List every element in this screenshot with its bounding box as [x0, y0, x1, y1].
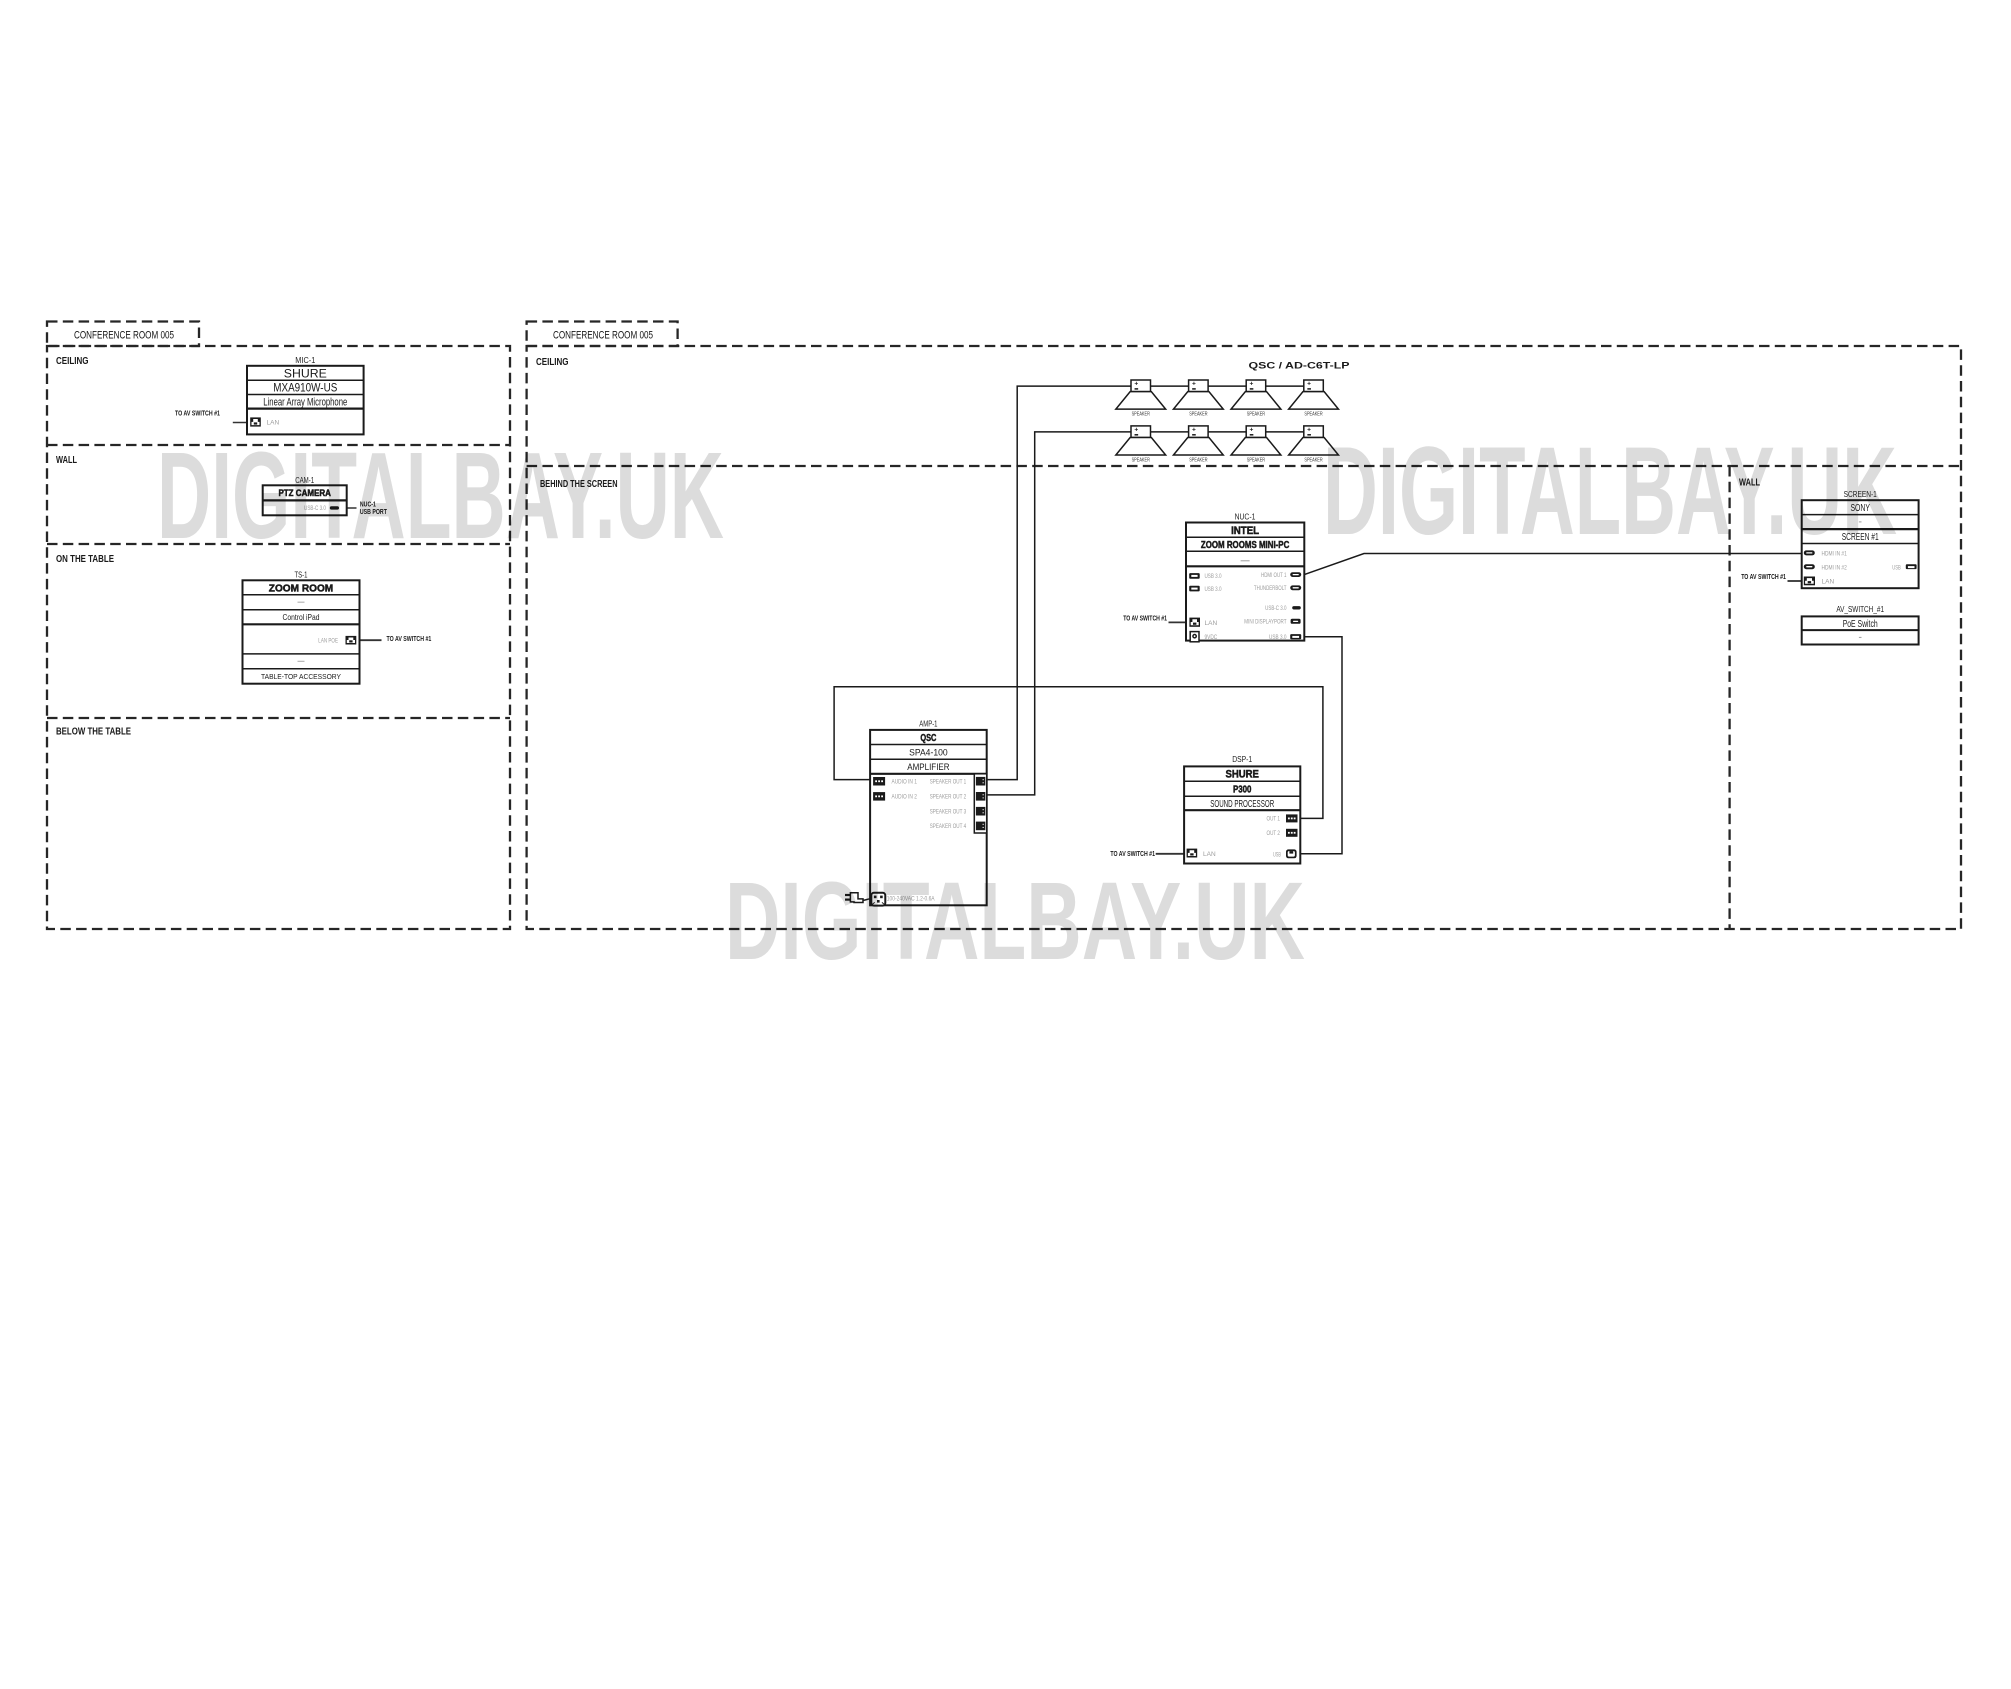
svg-text:CONFERENCE ROOM 005: CONFERENCE ROOM 005: [74, 330, 174, 342]
svg-text:TO AV SWITCH #1: TO AV SWITCH #1: [1110, 851, 1155, 858]
svg-text:AMPLIFIER: AMPLIFIER: [907, 762, 949, 773]
svg-text:SPEAKER OUT 4: SPEAKER OUT 4: [930, 823, 967, 830]
svg-text:USB-C 3.0: USB-C 3.0: [1265, 605, 1287, 612]
svg-text:SPEAKER: SPEAKER: [1189, 411, 1207, 417]
svg-text:LAN: LAN: [1822, 578, 1835, 585]
svg-text:SOUND PROCESSOR: SOUND PROCESSOR: [1210, 798, 1274, 810]
svg-text:ON THE TABLE: ON THE TABLE: [56, 553, 114, 565]
svg-text:DIGITALBAY.UK: DIGITALBAY.UK: [157, 428, 724, 565]
svg-text:SHURE: SHURE: [284, 366, 327, 380]
svg-text:CEILING: CEILING: [56, 355, 89, 367]
svg-text:DSP-1: DSP-1: [1232, 755, 1252, 764]
svg-text:TO AV SWITCH #1: TO AV SWITCH #1: [387, 636, 432, 643]
svg-text:+: +: [1134, 381, 1138, 388]
svg-text:LAN: LAN: [1205, 620, 1218, 627]
svg-text:LAN POE: LAN POE: [318, 637, 338, 644]
svg-text:SPEAKER OUT 3: SPEAKER OUT 3: [930, 809, 967, 816]
svg-text:THUNDERBOLT: THUNDERBOLT: [1254, 585, 1287, 592]
svg-text:BELOW THE TABLE: BELOW THE TABLE: [56, 726, 131, 738]
svg-text:+: +: [1250, 381, 1254, 388]
svg-text:+: +: [1192, 381, 1196, 388]
svg-text:MIC-1: MIC-1: [295, 356, 316, 365]
svg-text:SPEAKER: SPEAKER: [1304, 457, 1322, 463]
svg-text:SPEAKER OUT 1: SPEAKER OUT 1: [930, 779, 967, 786]
svg-text:QSC / AD-C6T-LP: QSC / AD-C6T-LP: [1249, 359, 1350, 370]
svg-text:USB 3.0: USB 3.0: [1205, 573, 1222, 580]
svg-text:CEILING: CEILING: [536, 356, 569, 368]
svg-text:SPEAKER: SPEAKER: [1132, 457, 1150, 463]
svg-text:INTEL: INTEL: [1231, 525, 1259, 537]
svg-text:SPEAKER: SPEAKER: [1247, 457, 1265, 463]
svg-text:AV_SWITCH_#1: AV_SWITCH_#1: [1836, 605, 1884, 614]
svg-text:OUT 2: OUT 2: [1267, 830, 1281, 837]
svg-text:+: +: [1192, 427, 1196, 434]
svg-text:QSC: QSC: [920, 733, 936, 744]
svg-text:SPA4-100: SPA4-100: [909, 747, 948, 758]
svg-text:LAN: LAN: [1203, 851, 1216, 858]
svg-text:USB 3.0: USB 3.0: [1205, 586, 1222, 593]
svg-text:USB: USB: [1892, 564, 1901, 571]
svg-text:TO AV SWITCH #1: TO AV SWITCH #1: [1123, 616, 1167, 623]
svg-text:9VDC: 9VDC: [1205, 634, 1218, 641]
svg-text:HDMI IN #2: HDMI IN #2: [1822, 564, 1848, 571]
svg-text:AUDIO IN 2: AUDIO IN 2: [892, 794, 918, 801]
svg-text:AMP-1: AMP-1: [919, 719, 938, 728]
svg-text:+: +: [1307, 427, 1311, 434]
svg-text:TABLE-TOP ACCESSORY: TABLE-TOP ACCESSORY: [261, 672, 341, 681]
svg-text:SPEAKER: SPEAKER: [1247, 411, 1265, 417]
svg-text:WALL: WALL: [56, 454, 77, 466]
svg-text:LAN: LAN: [267, 419, 280, 426]
svg-text:TS-1: TS-1: [295, 571, 308, 580]
svg-text:DIGITALBAY.UK: DIGITALBAY.UK: [725, 860, 1305, 983]
svg-text:AUDIO IN 1: AUDIO IN 1: [892, 779, 918, 786]
svg-text:ZOOM ROOM: ZOOM ROOM: [269, 583, 333, 594]
svg-text:ZOOM ROOMS MINI-PC: ZOOM ROOMS MINI-PC: [1201, 540, 1289, 551]
svg-text:PoE Switch: PoE Switch: [1843, 619, 1878, 630]
svg-text:+: +: [1307, 381, 1311, 388]
svg-text:HDMI OUT 1: HDMI OUT 1: [1261, 572, 1287, 579]
svg-text:SPEAKER: SPEAKER: [1132, 411, 1150, 417]
svg-text:+: +: [1250, 427, 1254, 434]
svg-text:SPEAKER: SPEAKER: [1189, 457, 1207, 463]
svg-text:P300: P300: [1233, 784, 1252, 796]
svg-text:Linear Array Microphone: Linear Array Microphone: [263, 397, 347, 409]
svg-text:DIGITALBAY.UK: DIGITALBAY.UK: [1323, 422, 1897, 561]
svg-text:Control iPad: Control iPad: [283, 613, 320, 622]
svg-text:OUT 1: OUT 1: [1267, 816, 1281, 823]
svg-text:USB 3.0: USB 3.0: [1269, 634, 1287, 641]
svg-text:USB: USB: [1273, 852, 1281, 859]
svg-text:MINI DISPLAYPORT: MINI DISPLAYPORT: [1244, 619, 1286, 626]
svg-text:NUC-1: NUC-1: [1235, 512, 1256, 521]
svg-text:TO AV SWITCH #1: TO AV SWITCH #1: [1741, 574, 1786, 581]
svg-text:+: +: [1134, 427, 1138, 434]
svg-text:MXA910W-US: MXA910W-US: [273, 381, 337, 395]
svg-text:CONFERENCE ROOM 005: CONFERENCE ROOM 005: [553, 330, 653, 342]
svg-text:TO AV SWITCH #1: TO AV SWITCH #1: [175, 411, 220, 418]
svg-text:SHURE: SHURE: [1225, 769, 1259, 781]
svg-text:SPEAKER OUT 2: SPEAKER OUT 2: [930, 794, 967, 801]
svg-text:SPEAKER: SPEAKER: [1304, 411, 1322, 417]
